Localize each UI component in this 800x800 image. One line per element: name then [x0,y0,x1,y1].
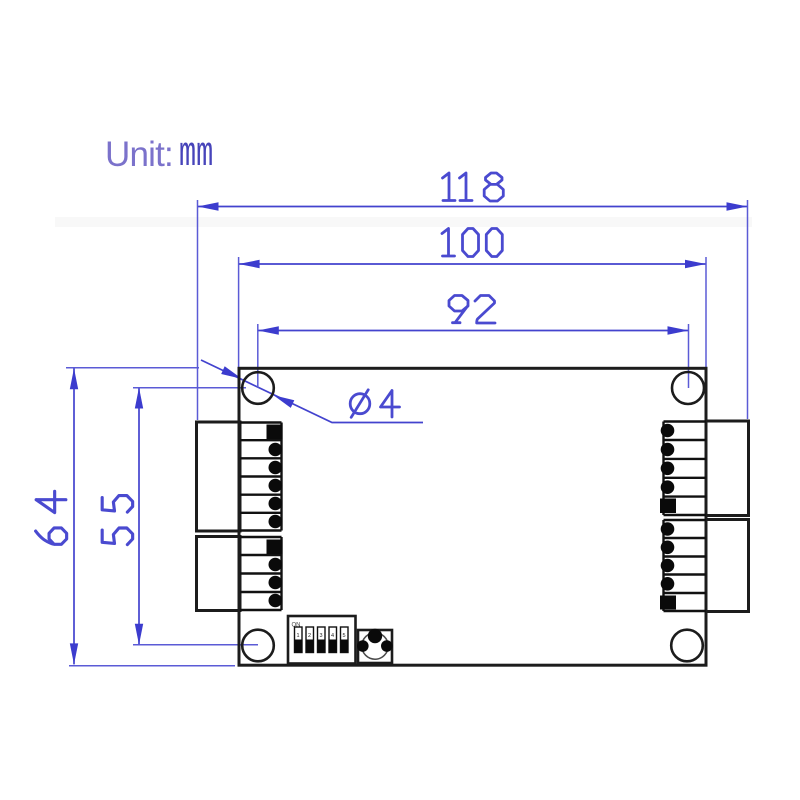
svg-text:Unit:: Unit: [105,135,173,174]
svg-text:5: 5 [343,633,346,639]
svg-text:2: 2 [308,633,311,639]
svg-text:4: 4 [331,633,334,639]
svg-text:3: 3 [320,633,323,639]
svg-text:mm: mm [179,130,213,178]
svg-text:1: 1 [297,633,300,639]
